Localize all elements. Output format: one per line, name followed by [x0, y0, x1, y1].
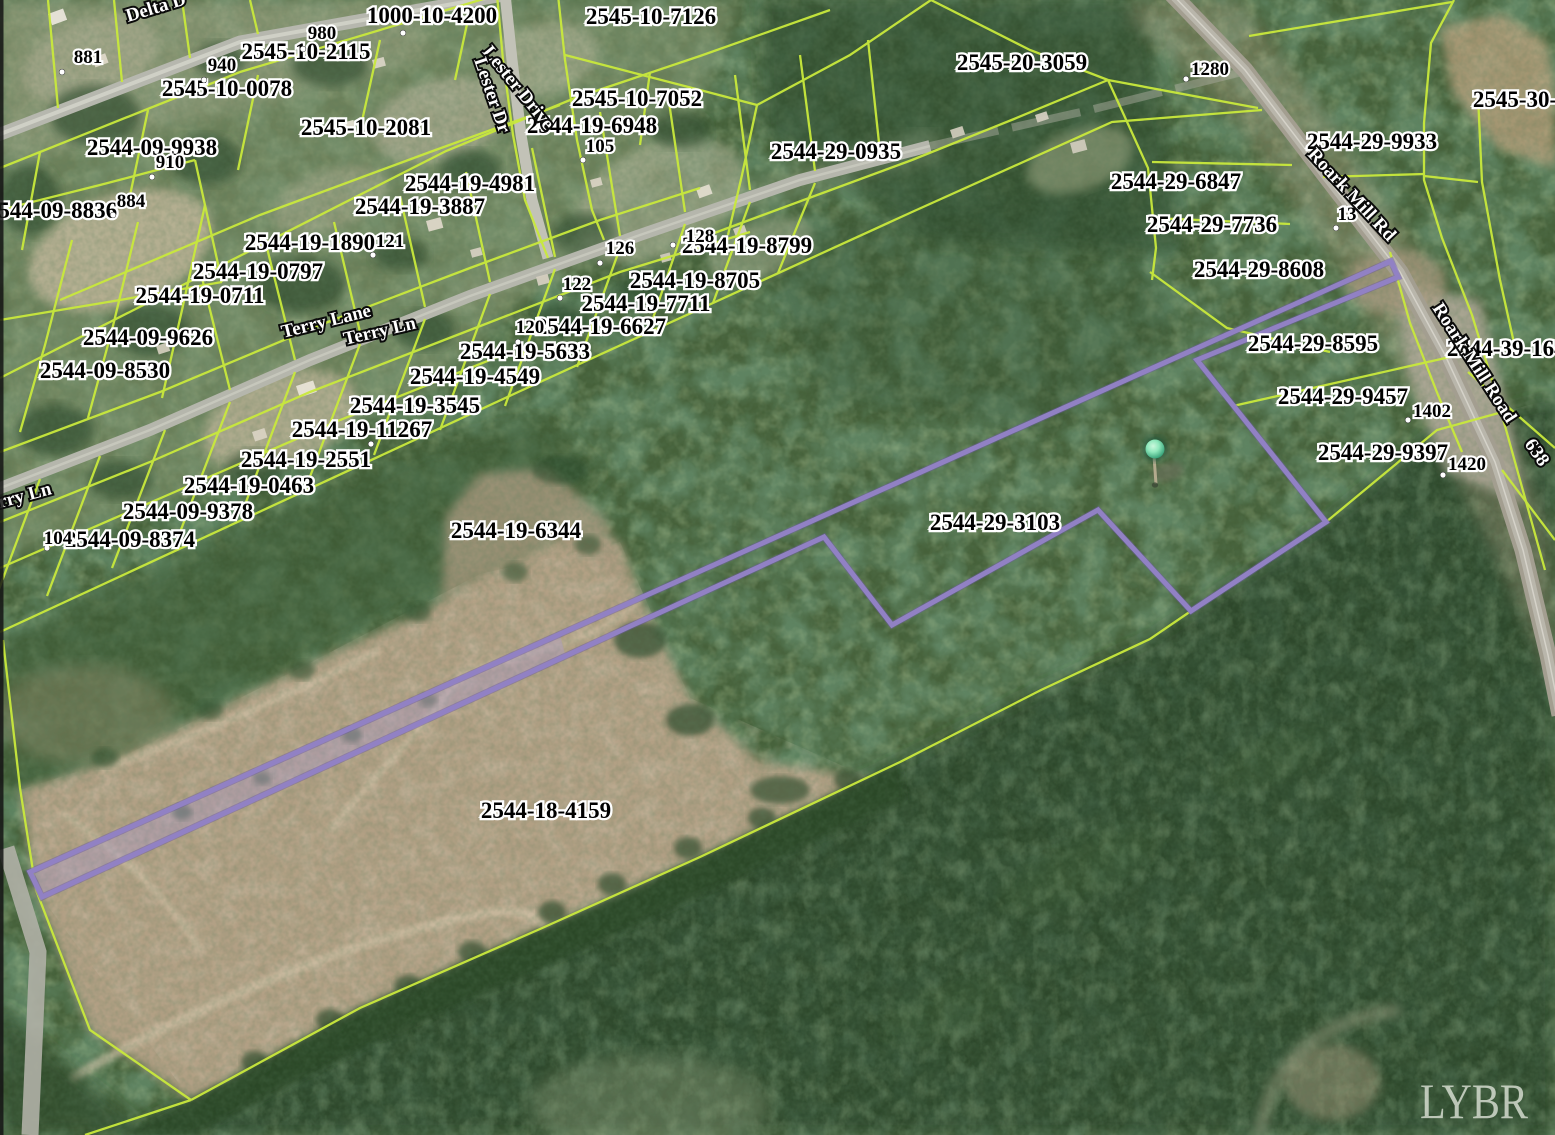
svg-text:2544-19-1890: 2544-19-1890 [245, 230, 375, 255]
svg-text:2544-29-9457: 2544-29-9457 [1278, 384, 1408, 409]
svg-text:881: 881 [74, 47, 103, 68]
svg-text:1402: 1402 [1413, 401, 1451, 422]
svg-text:2545-10-7126: 2545-10-7126 [586, 4, 716, 29]
svg-text:2544-29-6847: 2544-29-6847 [1111, 169, 1241, 194]
svg-text:980: 980 [308, 23, 337, 44]
svg-text:121: 121 [376, 231, 405, 252]
svg-text:2544-29-3103: 2544-29-3103 [930, 510, 1060, 535]
svg-text:2544-19-4981: 2544-19-4981 [405, 171, 535, 196]
svg-text:1000-10-4200: 1000-10-4200 [367, 3, 497, 28]
svg-text:105: 105 [586, 136, 615, 157]
svg-text:2545-10-0078: 2545-10-0078 [162, 76, 292, 101]
svg-text:2545-20-3059: 2545-20-3059 [957, 50, 1087, 75]
svg-text:2544-09-8530: 2544-09-8530 [40, 358, 170, 383]
svg-text:2544-09-9938: 2544-09-9938 [87, 135, 217, 160]
svg-text:2544-09-8836: 2544-09-8836 [0, 198, 117, 223]
svg-text:2544-19-5633: 2544-19-5633 [460, 339, 590, 364]
svg-text:2544-19-6627: 2544-19-6627 [536, 314, 666, 339]
svg-text:910: 910 [156, 152, 185, 173]
svg-text:2545-10-7052: 2545-10-7052 [572, 86, 702, 111]
svg-text:2544-19-6344: 2544-19-6344 [451, 518, 582, 543]
svg-text:2545-10-2115: 2545-10-2115 [241, 39, 370, 64]
svg-text:2544-19-4549: 2544-19-4549 [410, 364, 540, 389]
svg-text:2544-19-3545: 2544-19-3545 [350, 393, 480, 418]
svg-text:2544-19-0463: 2544-19-0463 [184, 473, 314, 498]
svg-text:2544-19-3887: 2544-19-3887 [355, 194, 485, 219]
svg-text:940: 940 [208, 55, 237, 76]
svg-text:2544-09-9378: 2544-09-9378 [123, 499, 253, 524]
svg-text:2544-29-7736: 2544-29-7736 [1147, 212, 1277, 237]
svg-text:2544-29-9933: 2544-29-9933 [1307, 129, 1437, 154]
svg-text:128: 128 [686, 226, 715, 247]
svg-text:LYBR: LYBR [1420, 1073, 1529, 1129]
svg-text:2544-09-8374: 2544-09-8374 [65, 527, 196, 552]
svg-text:2544-19-7711: 2544-19-7711 [581, 291, 710, 316]
svg-text:1420: 1420 [1448, 454, 1486, 475]
svg-text:2544-29-8595: 2544-29-8595 [1248, 331, 1378, 356]
svg-text:2544-19-2551: 2544-19-2551 [241, 447, 371, 472]
svg-text:2544-18-4159: 2544-18-4159 [481, 798, 611, 823]
svg-text:884: 884 [117, 191, 146, 212]
svg-text:2544-19-11267: 2544-19-11267 [292, 417, 433, 442]
svg-text:1280: 1280 [1191, 59, 1229, 80]
svg-text:2544-29-8608: 2544-29-8608 [1194, 257, 1324, 282]
svg-text:104: 104 [44, 528, 73, 549]
svg-text:122: 122 [563, 274, 592, 295]
svg-text:2544-19-0797: 2544-19-0797 [193, 259, 323, 284]
svg-text:2544-29-0935: 2544-29-0935 [771, 139, 901, 164]
svg-text:2544-29-9397: 2544-29-9397 [1318, 440, 1448, 465]
svg-text:2544-19-8705: 2544-19-8705 [630, 268, 760, 293]
svg-text:2544-09-9626: 2544-09-9626 [83, 325, 213, 350]
svg-text:2545-10-2081: 2545-10-2081 [301, 115, 431, 140]
svg-text:2545-30-0935: 2545-30-0935 [1473, 87, 1555, 112]
svg-text:120: 120 [516, 317, 545, 338]
svg-text:126: 126 [606, 238, 635, 259]
svg-text:2544-19-0711: 2544-19-0711 [135, 283, 264, 308]
